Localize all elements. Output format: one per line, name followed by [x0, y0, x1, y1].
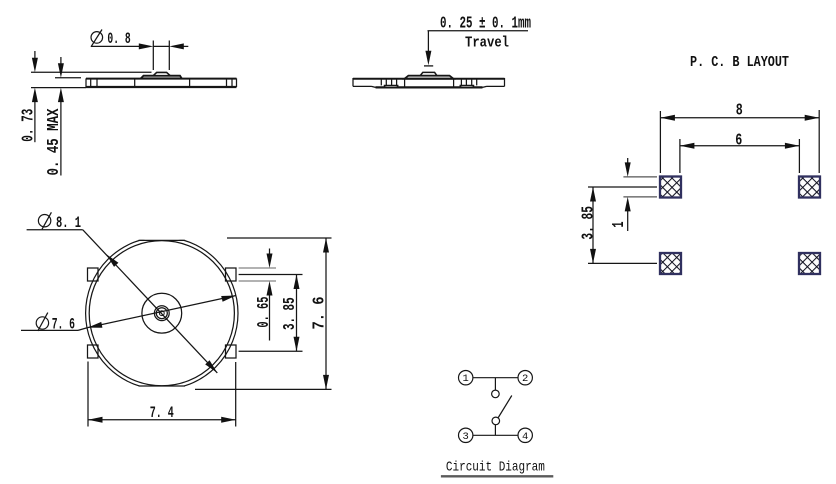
svg-text:0. 73: 0. 73 [20, 109, 39, 142]
svg-text:Travel: Travel [465, 34, 509, 51]
svg-text:7. 6: 7. 6 [310, 297, 329, 330]
svg-text:0. 45 MAX: 0. 45 MAX [45, 108, 64, 176]
svg-text:1: 1 [463, 373, 469, 385]
svg-text:3. 85: 3. 85 [281, 297, 300, 330]
svg-text:8: 8 [736, 102, 743, 121]
svg-text:0. 25 ± 0. 1mm: 0. 25 ± 0. 1mm [440, 14, 531, 33]
svg-text:2: 2 [522, 373, 528, 385]
svg-text:P. C. B LAYOUT: P. C. B LAYOUT [690, 54, 789, 71]
svg-text:7. 4: 7. 4 [150, 404, 174, 422]
svg-text:0. 8: 0. 8 [107, 30, 130, 48]
svg-text:7. 6: 7. 6 [52, 316, 75, 334]
svg-text:3: 3 [463, 431, 469, 443]
svg-text:6: 6 [735, 131, 742, 150]
svg-text:1: 1 [610, 222, 629, 228]
svg-text:0. 65: 0. 65 [255, 297, 274, 328]
svg-text:3. 85: 3. 85 [579, 206, 598, 240]
svg-text:Circuit Diagram: Circuit Diagram [446, 459, 545, 475]
svg-text:4: 4 [522, 431, 528, 443]
svg-text:8. 1: 8. 1 [56, 214, 81, 232]
